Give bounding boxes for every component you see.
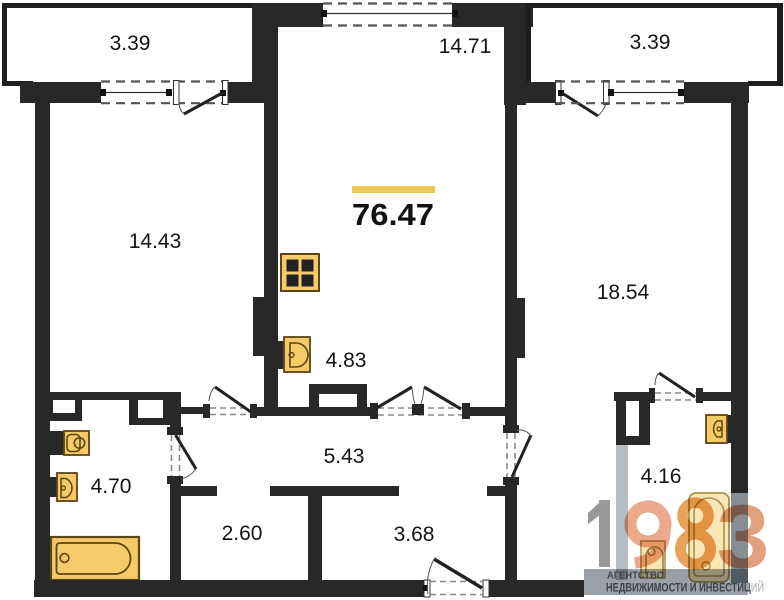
svg-text:18.54: 18.54 (597, 281, 650, 304)
svg-text:4.16: 4.16 (641, 465, 682, 488)
svg-text:3.39: 3.39 (110, 32, 151, 55)
svg-text:4.83: 4.83 (326, 349, 367, 372)
svg-text:3.39: 3.39 (630, 31, 671, 54)
svg-text:АГЕНТСТВО: АГЕНТСТВО (607, 571, 664, 582)
svg-text:2.60: 2.60 (222, 522, 263, 545)
svg-text:14.71: 14.71 (439, 35, 492, 58)
svg-text:5.43: 5.43 (324, 445, 365, 468)
svg-text:76.47: 76.47 (352, 197, 434, 232)
svg-text:14.43: 14.43 (129, 230, 182, 253)
svg-text:4.70: 4.70 (91, 475, 132, 498)
svg-text:3.68: 3.68 (394, 523, 435, 546)
svg-text:НЕДВИЖИМОСТИ И ИНВЕСТИЦИЙ: НЕДВИЖИМОСТИ И ИНВЕСТИЦИЙ (606, 582, 764, 595)
